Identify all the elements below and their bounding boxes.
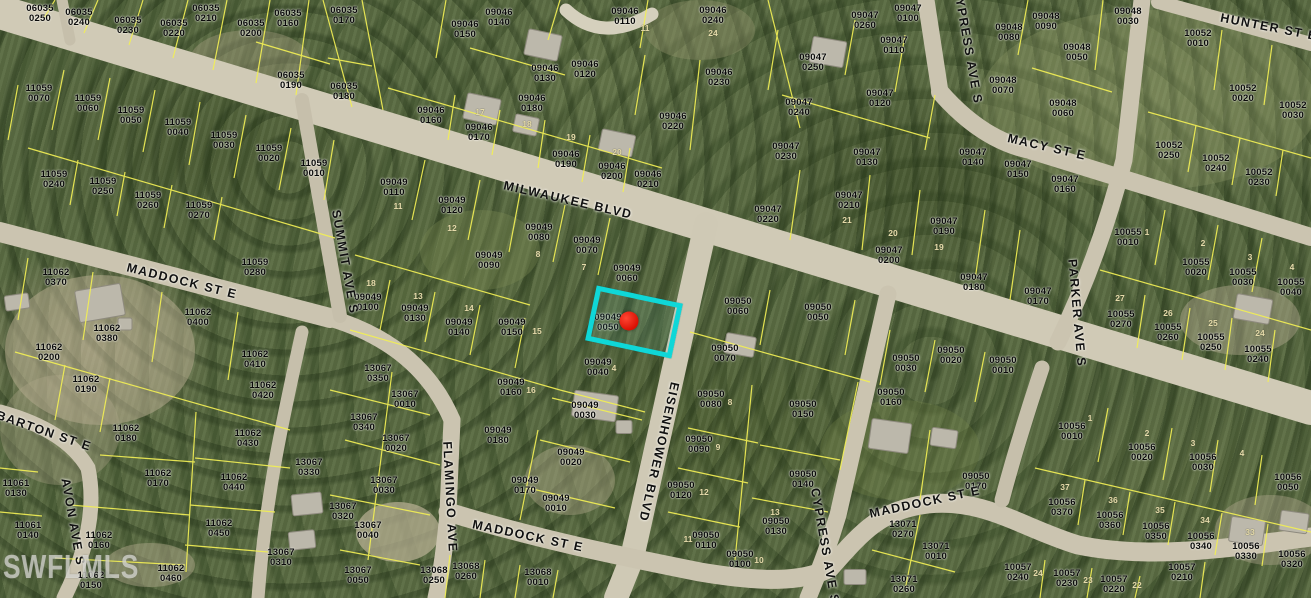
map-canvas[interactable]: 06035 025006035 024006035 023006035 0220…: [0, 0, 1311, 598]
building: [930, 427, 958, 448]
building: [868, 418, 912, 453]
building: [4, 293, 30, 311]
building: [598, 129, 636, 158]
building: [616, 421, 632, 434]
building: [809, 36, 847, 68]
map-marker-icon: [620, 312, 639, 331]
building: [463, 93, 502, 126]
building: [723, 333, 756, 358]
building: [291, 492, 323, 516]
building: [118, 318, 132, 330]
building: [844, 570, 866, 585]
building: [288, 530, 316, 551]
building: [524, 29, 563, 62]
